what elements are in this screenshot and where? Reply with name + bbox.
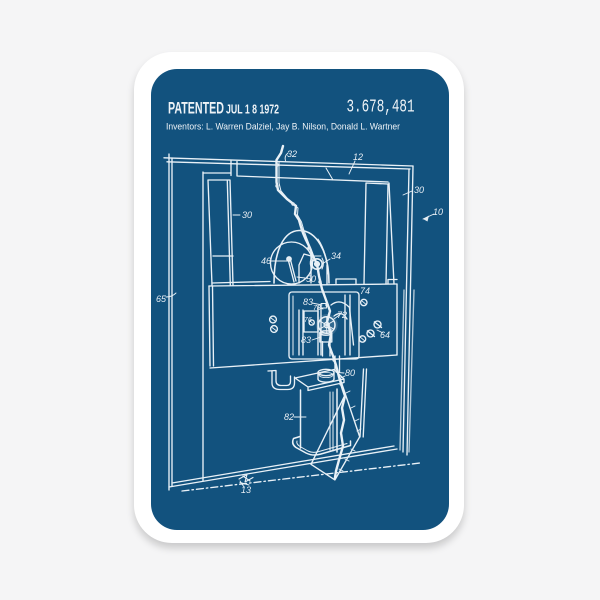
svg-text:12: 12 [353,152,363,162]
svg-text:76: 76 [304,317,312,324]
svg-text:72: 72 [337,310,347,320]
svg-text:30: 30 [414,185,424,195]
svg-text:74: 74 [360,286,370,296]
svg-text:34: 34 [331,251,341,261]
svg-text:JUL 1 8 1972: JUL 1 8 1972 [226,103,279,117]
svg-text:80: 80 [345,368,355,378]
svg-text:3.678,481: 3.678,481 [347,98,415,118]
svg-text:64: 64 [380,330,390,340]
svg-text:Inventors: L. Warren Dalziel,: Inventors: L. Warren Dalziel, Jay B. Nil… [166,122,400,133]
svg-text:13: 13 [241,485,251,495]
svg-text:78: 78 [313,305,321,312]
svg-text:32: 32 [287,149,297,159]
svg-text:30: 30 [242,210,252,220]
svg-text:46: 46 [261,256,271,266]
svg-text:83: 83 [303,297,313,307]
svg-text:50: 50 [306,274,316,284]
svg-text:PATENTED: PATENTED [168,100,224,118]
svg-text:83: 83 [301,335,311,345]
svg-text:82: 82 [284,412,294,422]
svg-text:65: 65 [156,294,167,304]
svg-text:10: 10 [433,207,443,217]
